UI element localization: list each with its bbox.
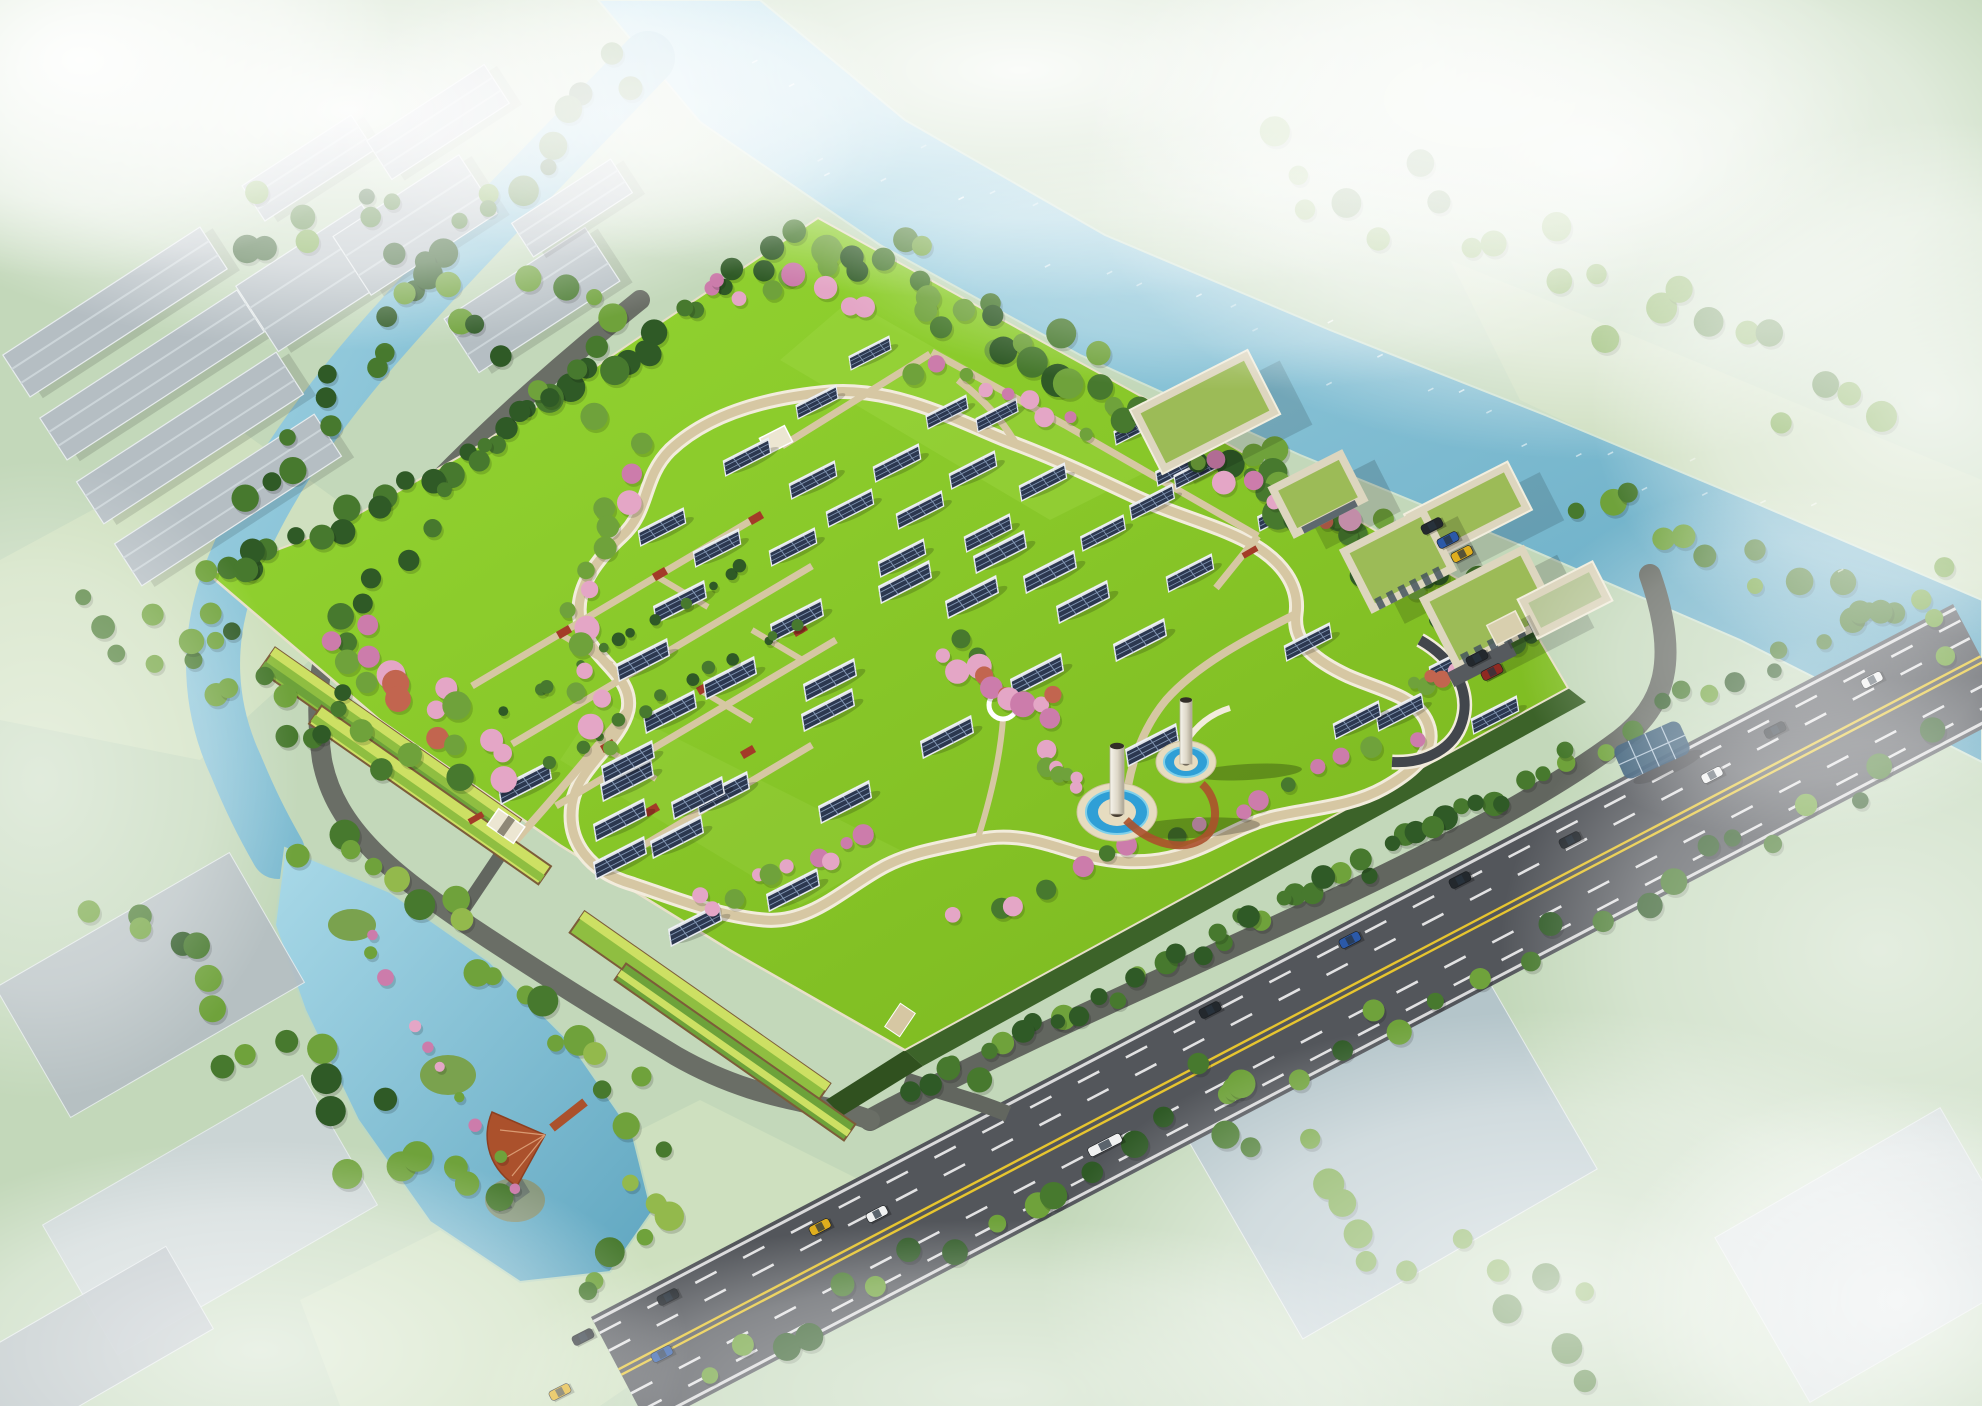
se-wall-flowers <box>1099 845 1115 861</box>
garden-hedge-a <box>709 582 718 591</box>
se-road-hedge <box>1311 865 1335 889</box>
tower-cylinder <box>1180 700 1192 764</box>
pond-shore-trees <box>341 840 360 859</box>
garden-hedge-a <box>612 633 626 647</box>
north-mid-flowers <box>1020 390 1039 409</box>
pond-shore-trees <box>384 866 410 892</box>
se-road-hedge <box>1237 905 1260 928</box>
sw-grove <box>358 646 380 668</box>
canal-inner-trees <box>334 684 351 701</box>
north-mid-flowers <box>1034 407 1054 427</box>
se-road-hedge <box>1051 1014 1065 1028</box>
pond-shore-trees <box>583 1042 606 1065</box>
se-wall-flowers <box>1036 880 1056 900</box>
garden-hedge-a <box>599 643 609 653</box>
south-loop-flowers <box>725 889 745 909</box>
north-mid-flowers <box>928 355 945 372</box>
bottomright-trees <box>1188 1053 1210 1075</box>
garden-hedge-b <box>577 741 590 754</box>
garden-hedge-a <box>540 680 554 694</box>
roadside-trees-north <box>920 1074 942 1096</box>
nw-boundary-trees <box>396 471 415 490</box>
sw-grove <box>356 672 377 693</box>
se-wall-flowers <box>1310 759 1325 774</box>
island-flowers <box>364 946 377 959</box>
canal-bank-trees <box>316 387 337 408</box>
garden-hedge-a <box>650 614 661 625</box>
island-flowers <box>495 1150 508 1163</box>
north-mid-flowers <box>1002 388 1015 401</box>
central-grove <box>936 648 950 662</box>
roadside-trees-north <box>1194 946 1213 965</box>
industrial-trees <box>490 345 512 367</box>
canal-inner-trees <box>361 568 381 588</box>
se-road-hedge <box>1012 1020 1035 1043</box>
north-corner-flowers <box>732 291 747 306</box>
north-mid-flowers <box>979 383 993 397</box>
se-wall-flowers <box>1003 896 1023 916</box>
sw-grove <box>357 615 378 636</box>
nw-boundary-trees <box>600 356 629 385</box>
central-grove <box>1010 691 1036 717</box>
se-road-hedge <box>1350 848 1372 870</box>
west-loop-flowers <box>622 464 642 484</box>
se-road-hedge <box>937 1057 961 1081</box>
pond-island <box>420 1055 476 1095</box>
bottomleft-trees <box>374 1088 397 1111</box>
garden-hedge-b <box>639 705 652 718</box>
se-road-hedge <box>1277 891 1292 906</box>
sw-grove <box>491 766 518 793</box>
west-loop-flowers <box>603 741 618 756</box>
canal-inner-trees <box>437 482 452 497</box>
sw-grove <box>385 686 411 712</box>
roadside-trees-south <box>1040 1182 1067 1209</box>
industrial-trees <box>580 403 607 430</box>
garden-hedge-b <box>726 653 739 666</box>
south-loop-flowers <box>822 853 840 871</box>
east-riverbank-trees <box>1568 503 1584 519</box>
tower-cylinder <box>1110 746 1124 814</box>
pond-shore-trees <box>613 1112 640 1139</box>
se-wall-flowers <box>1281 777 1296 792</box>
bottomleft-trees <box>211 1055 235 1079</box>
nw-boundary-trees <box>368 496 391 519</box>
bottomleft-trees <box>275 1030 298 1053</box>
garden-hedge-a <box>498 706 508 716</box>
south-loop-flowers <box>760 864 781 885</box>
pond-shore-trees <box>637 1229 654 1246</box>
west-loop-flowers <box>578 714 604 740</box>
tower-opening <box>1110 743 1124 749</box>
sw-grove <box>335 650 360 675</box>
west-loop-flowers <box>593 690 611 708</box>
industrial-trees <box>638 343 662 367</box>
se-road-hedge <box>1166 944 1186 964</box>
sw-grove <box>327 603 354 630</box>
garden-hedge-a <box>733 559 746 572</box>
west-trees <box>398 743 422 767</box>
island-flowers <box>409 1020 421 1032</box>
west-loop-flowers <box>593 497 615 519</box>
se-wall-flowers <box>1248 790 1269 811</box>
garden-hedge-b <box>702 661 715 674</box>
se-wall-flowers <box>1333 748 1350 765</box>
pond-shore-trees <box>365 858 383 876</box>
west-trees <box>350 719 373 742</box>
se-road-hedge <box>1091 988 1108 1005</box>
pond-shore-trees <box>404 889 435 920</box>
central-grove <box>945 659 969 683</box>
north-mid-flowers <box>960 368 974 382</box>
canal-inner-trees <box>398 550 419 571</box>
nw-boundary-trees <box>333 495 360 522</box>
tower-grove <box>1070 781 1082 793</box>
canal-bank-trees <box>279 457 306 484</box>
pond-shore-trees <box>527 986 558 1017</box>
ne-flowers <box>1212 471 1236 495</box>
pond-shore-trees <box>632 1067 652 1087</box>
canal-inner-trees <box>312 725 331 744</box>
nw-boundary-trees <box>309 525 334 550</box>
island-flowers <box>377 969 394 986</box>
garden-hedge-b <box>768 631 778 641</box>
se-road-hedge <box>1467 795 1483 811</box>
pond-shore-trees <box>655 1202 684 1231</box>
nw-boundary-trees <box>676 300 693 317</box>
canal-bank-trees <box>367 357 388 378</box>
bottomleft-trees <box>316 1096 346 1126</box>
aerial-render <box>0 0 1982 1406</box>
se-road-hedge <box>1493 796 1509 812</box>
se-wall-flowers <box>945 907 961 923</box>
bottomleft-trees <box>311 1063 342 1094</box>
south-loop-flowers <box>692 887 708 903</box>
bottomleft-trees <box>307 1034 337 1064</box>
se-road-hedge <box>1422 816 1444 838</box>
west-loop-flowers <box>567 682 586 701</box>
pond-shore-trees <box>547 1035 564 1052</box>
se-wall-flowers <box>1073 856 1094 877</box>
south-loop-flowers <box>780 859 794 873</box>
se-wall-flowers <box>1360 736 1382 758</box>
canal-bank-trees <box>320 415 341 436</box>
tower-grove <box>1037 740 1057 760</box>
west-loop-flowers <box>617 490 642 515</box>
canal-inner-trees <box>540 388 559 407</box>
south-loop-flowers <box>705 901 720 916</box>
bottomleft-trees <box>235 1044 256 1065</box>
garden-hedge-b <box>543 756 556 769</box>
island-flowers <box>422 1042 433 1053</box>
se-road-hedge <box>1125 968 1145 988</box>
roadside-trees-north <box>1069 1006 1089 1026</box>
canal-inner-trees <box>469 450 490 471</box>
north-mid-flowers <box>1080 428 1093 441</box>
roadside-trees-south <box>1427 993 1444 1010</box>
canal-inner-trees <box>567 359 587 379</box>
se-wall-flowers <box>1236 804 1251 819</box>
se-road-hedge <box>1385 836 1400 851</box>
se-wall-flowers <box>1410 732 1425 747</box>
north-mid-flowers <box>1065 411 1077 423</box>
canal-bank-trees <box>279 429 296 446</box>
garden-hedge-a <box>681 598 692 609</box>
roadside-trees-north <box>967 1067 992 1092</box>
canal-bank-trees <box>263 472 282 491</box>
pond-shore-trees <box>593 1080 611 1098</box>
roadside-trees-north <box>1453 798 1469 814</box>
canal-inner-trees <box>478 438 492 452</box>
canal-bank-trees <box>232 485 259 512</box>
garden-hedge-a <box>625 628 635 638</box>
sw-grove <box>444 735 465 756</box>
west-loop-flowers <box>560 602 576 618</box>
island-flowers <box>367 930 378 941</box>
se-road-hedge <box>981 1043 997 1059</box>
nw-boundary-trees <box>287 527 304 544</box>
west-loop-flowers <box>577 562 595 580</box>
west-loop-flowers <box>569 632 593 656</box>
sw-grove <box>446 764 473 791</box>
central-grove <box>952 629 971 648</box>
tower-opening <box>1180 697 1192 703</box>
canal-inner-trees <box>423 519 441 537</box>
se-road-hedge <box>900 1081 921 1102</box>
se-road-hedge <box>1535 766 1550 781</box>
west-loop-flowers <box>581 581 598 598</box>
south-loop-flowers <box>853 824 874 845</box>
canal-inner-trees <box>353 594 373 614</box>
canal-inner-trees <box>586 336 608 358</box>
garden-hedge-b <box>792 619 804 631</box>
se-road-hedge <box>1209 924 1227 942</box>
island-flowers <box>454 1092 464 1102</box>
sw-grove <box>493 744 512 763</box>
garden-hedge-b <box>687 673 700 686</box>
roadside-trees-north <box>1110 992 1127 1009</box>
pond-shore-trees <box>484 967 502 985</box>
canal-inner-trees <box>509 401 530 422</box>
roadside-trees-south <box>1470 968 1491 989</box>
garden-hedge-b <box>612 713 626 727</box>
north-mid-flowers <box>902 363 924 385</box>
garden-hedge-b <box>654 689 666 701</box>
roadside-trees-north <box>1516 771 1535 790</box>
island-flowers <box>468 1119 481 1132</box>
ne-flowers <box>1244 471 1264 491</box>
sw-grove <box>442 691 471 720</box>
scene-canvas <box>0 0 1982 1406</box>
pond-shore-trees <box>622 1175 639 1192</box>
west-loop-flowers <box>597 515 620 538</box>
sw-grove <box>322 631 342 651</box>
west-loop-flowers <box>631 433 653 455</box>
canal-bank-trees <box>318 365 337 384</box>
central-grove <box>1040 708 1061 729</box>
pond-shore-trees <box>451 908 474 931</box>
west-loop-flowers <box>594 537 617 560</box>
central-grove <box>1044 686 1061 703</box>
pond-shore-trees <box>656 1141 672 1157</box>
island-flowers <box>435 1062 445 1072</box>
west-loop-flowers <box>576 663 592 679</box>
west-trees <box>370 758 393 781</box>
south-loop-flowers <box>841 837 853 849</box>
roadside-trees-south <box>1363 999 1385 1021</box>
